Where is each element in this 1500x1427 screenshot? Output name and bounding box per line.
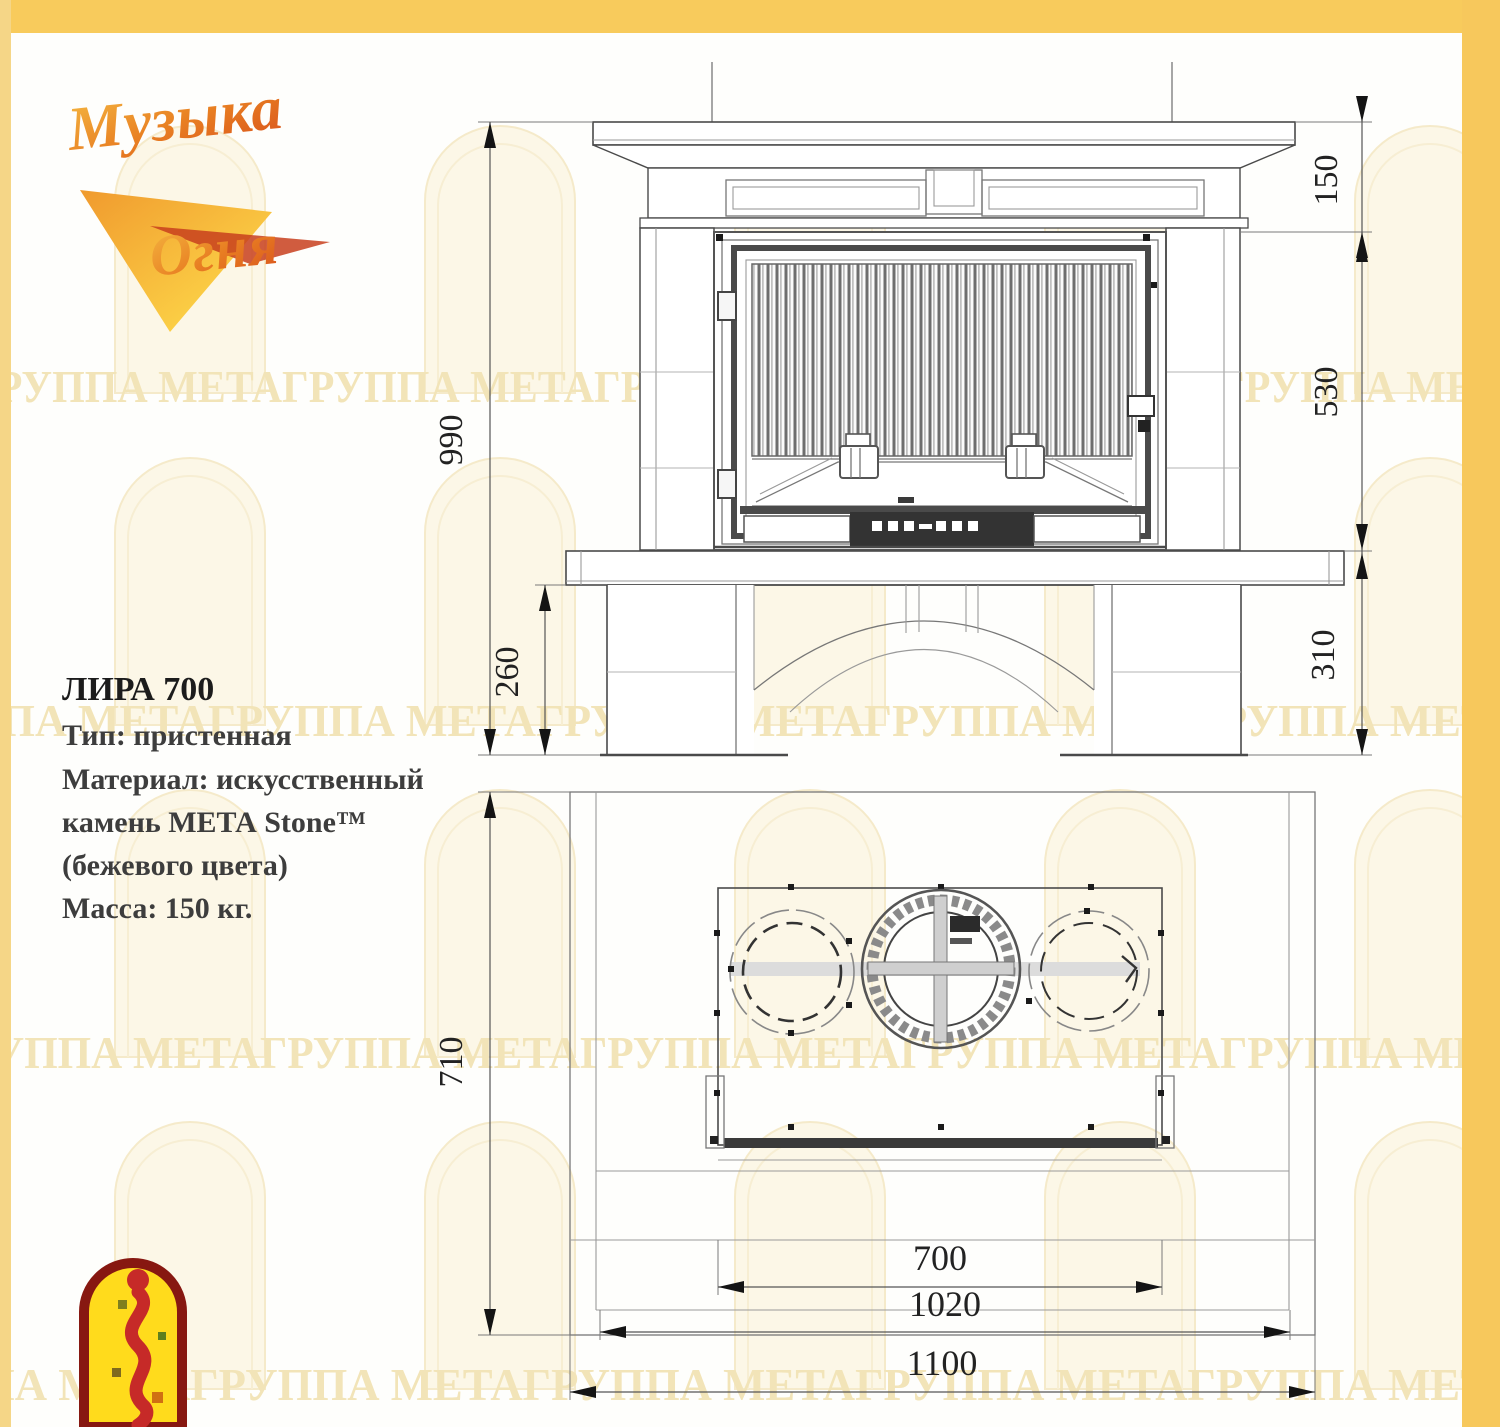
dim-mantel-height-label: 150 [1308,155,1345,206]
dim-overall-height-label: 990 [433,415,470,466]
dim-base-height-label: 260 [489,647,526,698]
watermark-row-3: ГРУППА МЕТАГРУППА МЕТАГРУППА МЕТАГРУППА … [0,1027,1500,1078]
flue-collar-center [862,890,1020,1048]
ash-pan-band [714,506,1166,547]
insert-bracket-left [706,1076,724,1148]
mantel-shelf [593,122,1295,168]
drawing-canvas: ГРУППА МЕТАГРУППА МЕТАГРУППА МЕТАГРУППА … [0,0,1500,1427]
dim-depth-label: 710 [433,1037,470,1088]
border-top [0,0,1500,33]
dim-firebox-height-label: 530 [1308,367,1345,418]
chimney-stub-lines [712,62,1172,122]
dim-overall-width-label: 1100 [907,1343,978,1383]
product-material-3: (бежевого цвета) [62,849,288,882]
watermark-row-4: ПА МЕТАГРУППА МЕТАГРУППА МЕТАГРУППА МЕТА… [0,1359,1500,1410]
logo-word-2: Огня [147,211,282,289]
frieze-panel [640,168,1248,228]
dim-plinth-height-label: 310 [1305,630,1342,681]
hearth-shelf [566,551,1344,585]
right-column [1166,228,1240,550]
door-hinge-top [718,292,736,320]
product-mass: Масса: 150 кг. [62,892,252,925]
product-type: Тип: пристенная [62,719,292,752]
firebox-insert [714,232,1166,550]
product-material-1: Материал: искусственный [62,763,424,796]
spec-sheet-page: ГРУППА МЕТАГРУППА МЕТАГРУППА МЕТАГРУППА … [0,0,1500,1427]
dim-body-width-label: 1020 [909,1284,981,1324]
corner-emblem-icon [84,1263,182,1427]
door-grille [752,264,1132,456]
left-column [640,228,714,550]
door-hinge-bottom [718,470,736,498]
logo-word-1: Музыка [63,74,286,164]
border-right [1462,0,1500,1427]
dim-firebox-width-label: 700 [913,1238,967,1278]
product-material-2: камень МЕТА Stone™ [62,806,366,839]
product-title: ЛИРА 700 [62,671,214,708]
border-left [0,0,11,1427]
